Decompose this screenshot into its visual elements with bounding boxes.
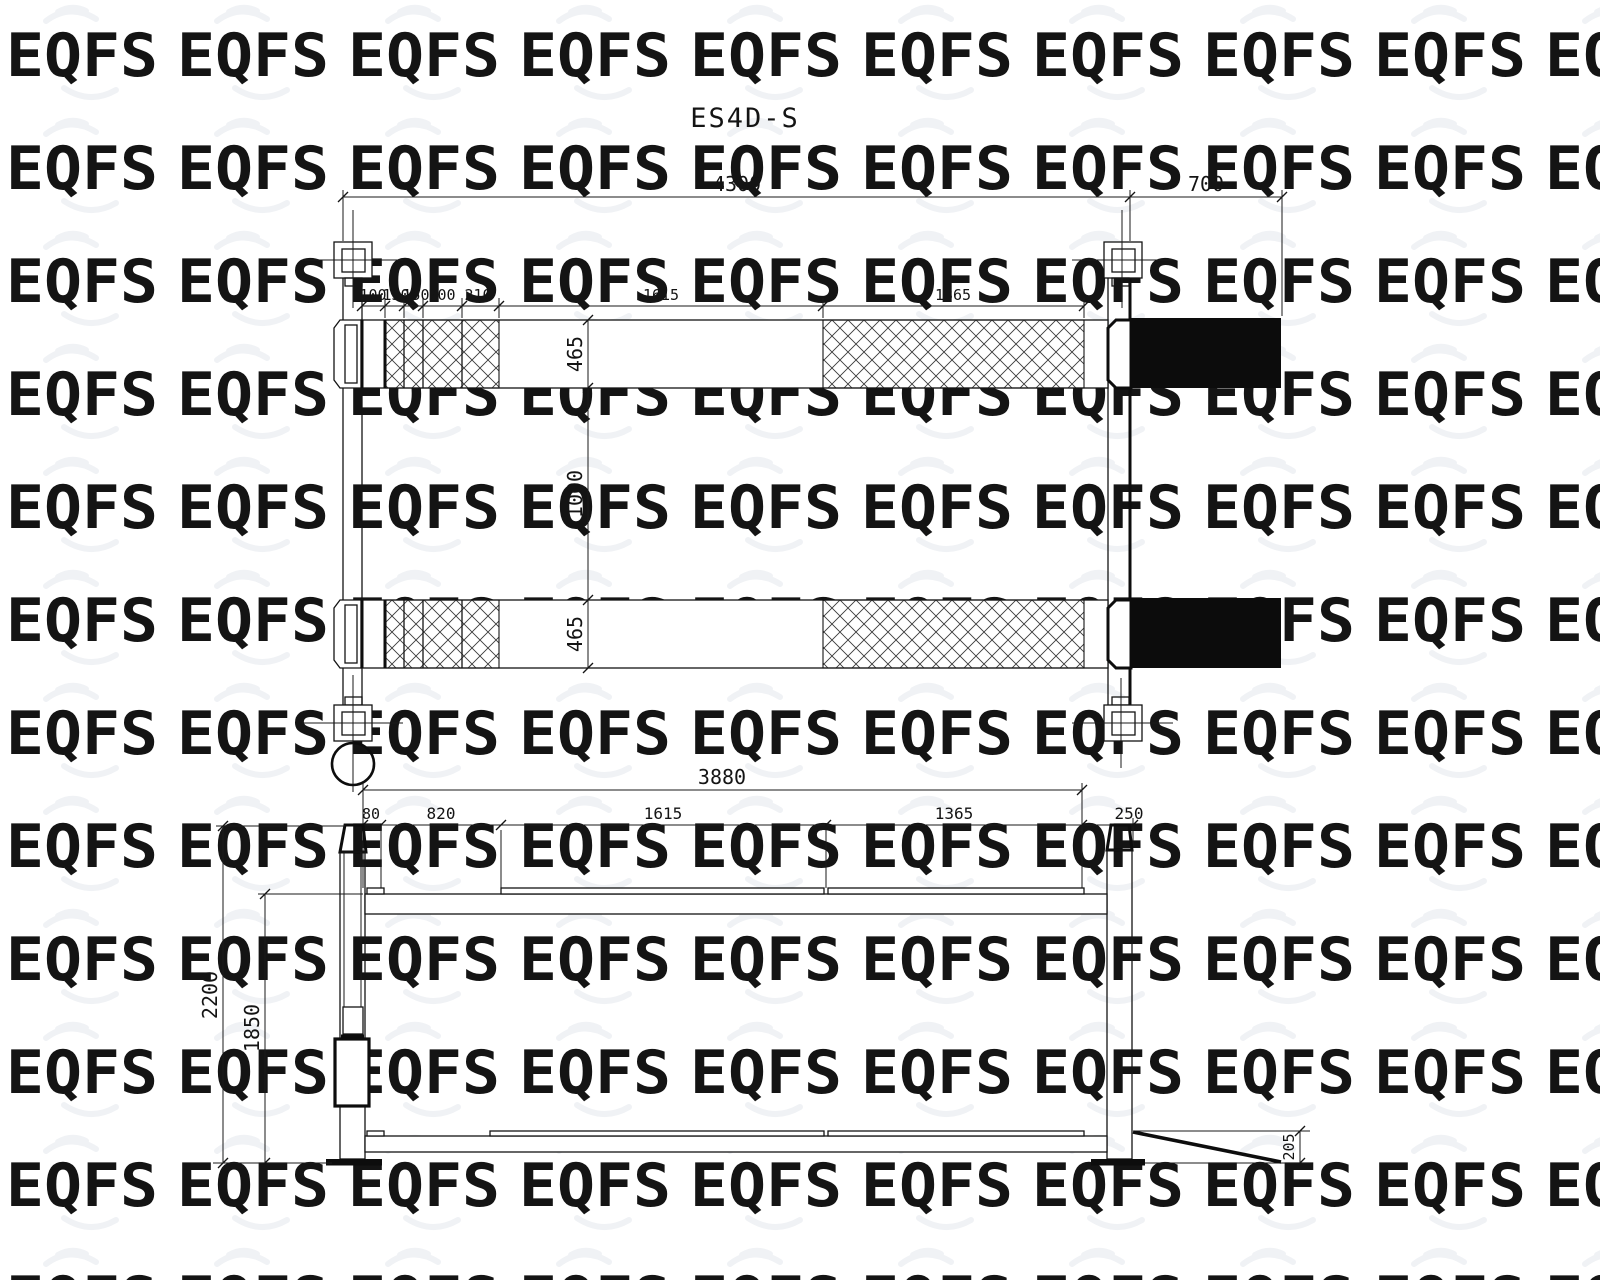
drive-on-ramp-front: [1108, 318, 1281, 388]
dim-820-label: 820: [427, 804, 456, 823]
dim-465-front-label: 465: [563, 336, 587, 372]
dim-2200-label: 2200: [198, 971, 222, 1019]
tread-hatch-right: [823, 320, 1084, 388]
runway-front: [334, 320, 1108, 388]
dim-150-label: 150: [402, 286, 429, 304]
ramp-pad: [1130, 598, 1281, 668]
base-plate-strip: [828, 1131, 1084, 1136]
dim-1850-label: 1850: [240, 1004, 264, 1052]
lift-technical-drawing: EQFS ES4D-S: [0, 0, 1600, 1280]
dim-4300-label: 4300: [713, 172, 761, 196]
base-plate: [326, 1159, 382, 1166]
dim-1615-label: 1615: [644, 804, 683, 823]
ramp-pad: [1130, 318, 1281, 388]
runway-plate: [501, 888, 824, 894]
runway-plate: [828, 888, 1084, 894]
tread-hatch-left: [386, 600, 499, 668]
dim-465-rear-label: 465: [563, 616, 587, 652]
base-plate-strip: [490, 1131, 824, 1136]
dim-1365-label: 1365: [935, 286, 971, 304]
tread-hatch-left: [386, 320, 499, 388]
dim-1365-label: 1365: [935, 804, 974, 823]
dim-210-label: 210: [464, 286, 491, 304]
dim-1615-label: 1615: [643, 286, 679, 304]
dim-250-label: 250: [1115, 804, 1144, 823]
runway-beam: [365, 894, 1107, 914]
dim-1000-label: 1000: [563, 470, 587, 518]
wheel-stop-tab: [367, 888, 384, 894]
dim-205-label: 205: [1280, 1133, 1298, 1160]
ramp-coupler: [1108, 600, 1131, 668]
drawing-title: ES4D-S: [690, 103, 800, 134]
base-beam: [365, 1136, 1107, 1152]
page: EQFS ES4D-S: [0, 0, 1600, 1280]
drive-on-ramp-rear: [1108, 598, 1281, 668]
runway-rear: [334, 600, 1108, 668]
power-unit-box: [335, 1039, 369, 1106]
wheel-stop-tab: [367, 1131, 384, 1136]
dim-200-label: 200: [428, 286, 455, 304]
ramp-coupler: [1108, 320, 1131, 388]
base-plate: [1091, 1159, 1145, 1166]
tread-hatch-right: [823, 600, 1084, 668]
dim-700-label: 700: [1188, 172, 1224, 196]
plan-dim-width: 465 1000 465: [563, 315, 593, 673]
dim-3880-label: 3880: [698, 765, 746, 789]
dim-80-label: 80: [362, 805, 380, 823]
carriage-box: [343, 1007, 363, 1034]
